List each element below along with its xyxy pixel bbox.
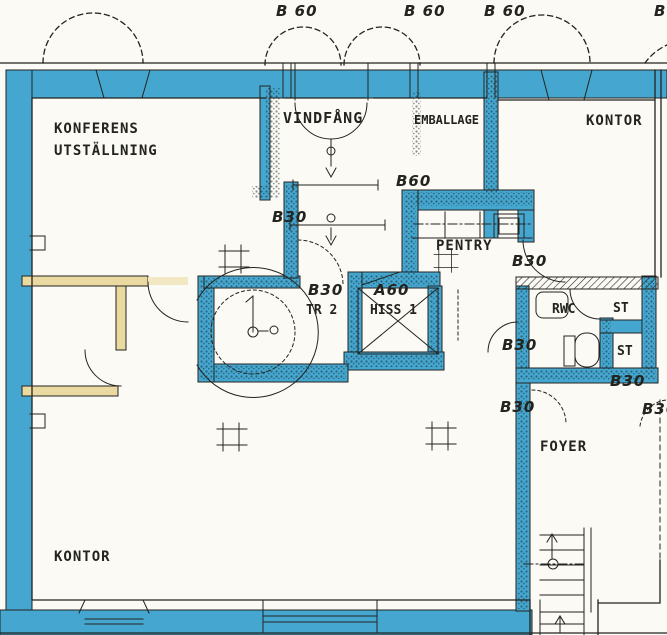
room-label-utstallning: UTSTÄLLNING bbox=[54, 143, 158, 159]
room-label-kontor-sw: KONTOR bbox=[54, 549, 111, 565]
partition-walls-yellow bbox=[22, 276, 188, 396]
room-label-konferens: KONFERENS bbox=[54, 121, 139, 137]
vindfang-door-details bbox=[290, 139, 385, 245]
door-label-b30-rwc: B30 bbox=[502, 336, 537, 354]
door-label-b30-st: B30 bbox=[610, 372, 645, 390]
exterior-door-swings bbox=[43, 13, 667, 65]
room-label-st-lower: ST bbox=[617, 344, 633, 359]
room-label-tr2: TR 2 bbox=[306, 303, 337, 318]
door-label-b30-foyer-right: B30 bbox=[642, 400, 667, 418]
room-label-foyer: FOYER bbox=[540, 439, 587, 455]
room-label-rwc: RWC bbox=[552, 302, 575, 317]
door-label-b-top-right: B bbox=[654, 2, 666, 20]
door-label-b30-tr2-upper: B30 bbox=[272, 208, 307, 226]
foyer-stair bbox=[524, 400, 660, 635]
room-label-emballage: EMBALLAGE bbox=[414, 113, 479, 127]
floor-plan: KONFERENS UTSTÄLLNING VINDFÅNG EMBALLAGE… bbox=[0, 0, 667, 635]
door-label-b30-foyer-left: B30 bbox=[500, 398, 535, 416]
room-label-vindfang: VINDFÅNG bbox=[283, 109, 363, 127]
door-label-a60-hiss: A60 bbox=[374, 281, 409, 299]
toilet-bowl-icon bbox=[575, 333, 599, 367]
door-label-b60-top-2: B 60 bbox=[404, 2, 446, 20]
room-label-pentry: PENTRY bbox=[436, 238, 493, 254]
toilet-tank-icon bbox=[564, 336, 575, 366]
room-label-kontor-ne: KONTOR bbox=[586, 113, 643, 129]
door-label-b30-tr2: B30 bbox=[308, 281, 343, 299]
room-label-hiss: HISS 1 bbox=[370, 303, 417, 318]
door-label-b60-top-3: B 60 bbox=[484, 2, 526, 20]
pentry-counter bbox=[412, 212, 532, 238]
room-label-st-upper: ST bbox=[613, 301, 629, 316]
door-label-b60-pentry: B60 bbox=[396, 172, 431, 190]
hatched-wall-rwc bbox=[516, 277, 658, 289]
door-label-b60-top-1: B 60 bbox=[276, 2, 318, 20]
door-label-b30-kontor: B30 bbox=[512, 252, 547, 270]
